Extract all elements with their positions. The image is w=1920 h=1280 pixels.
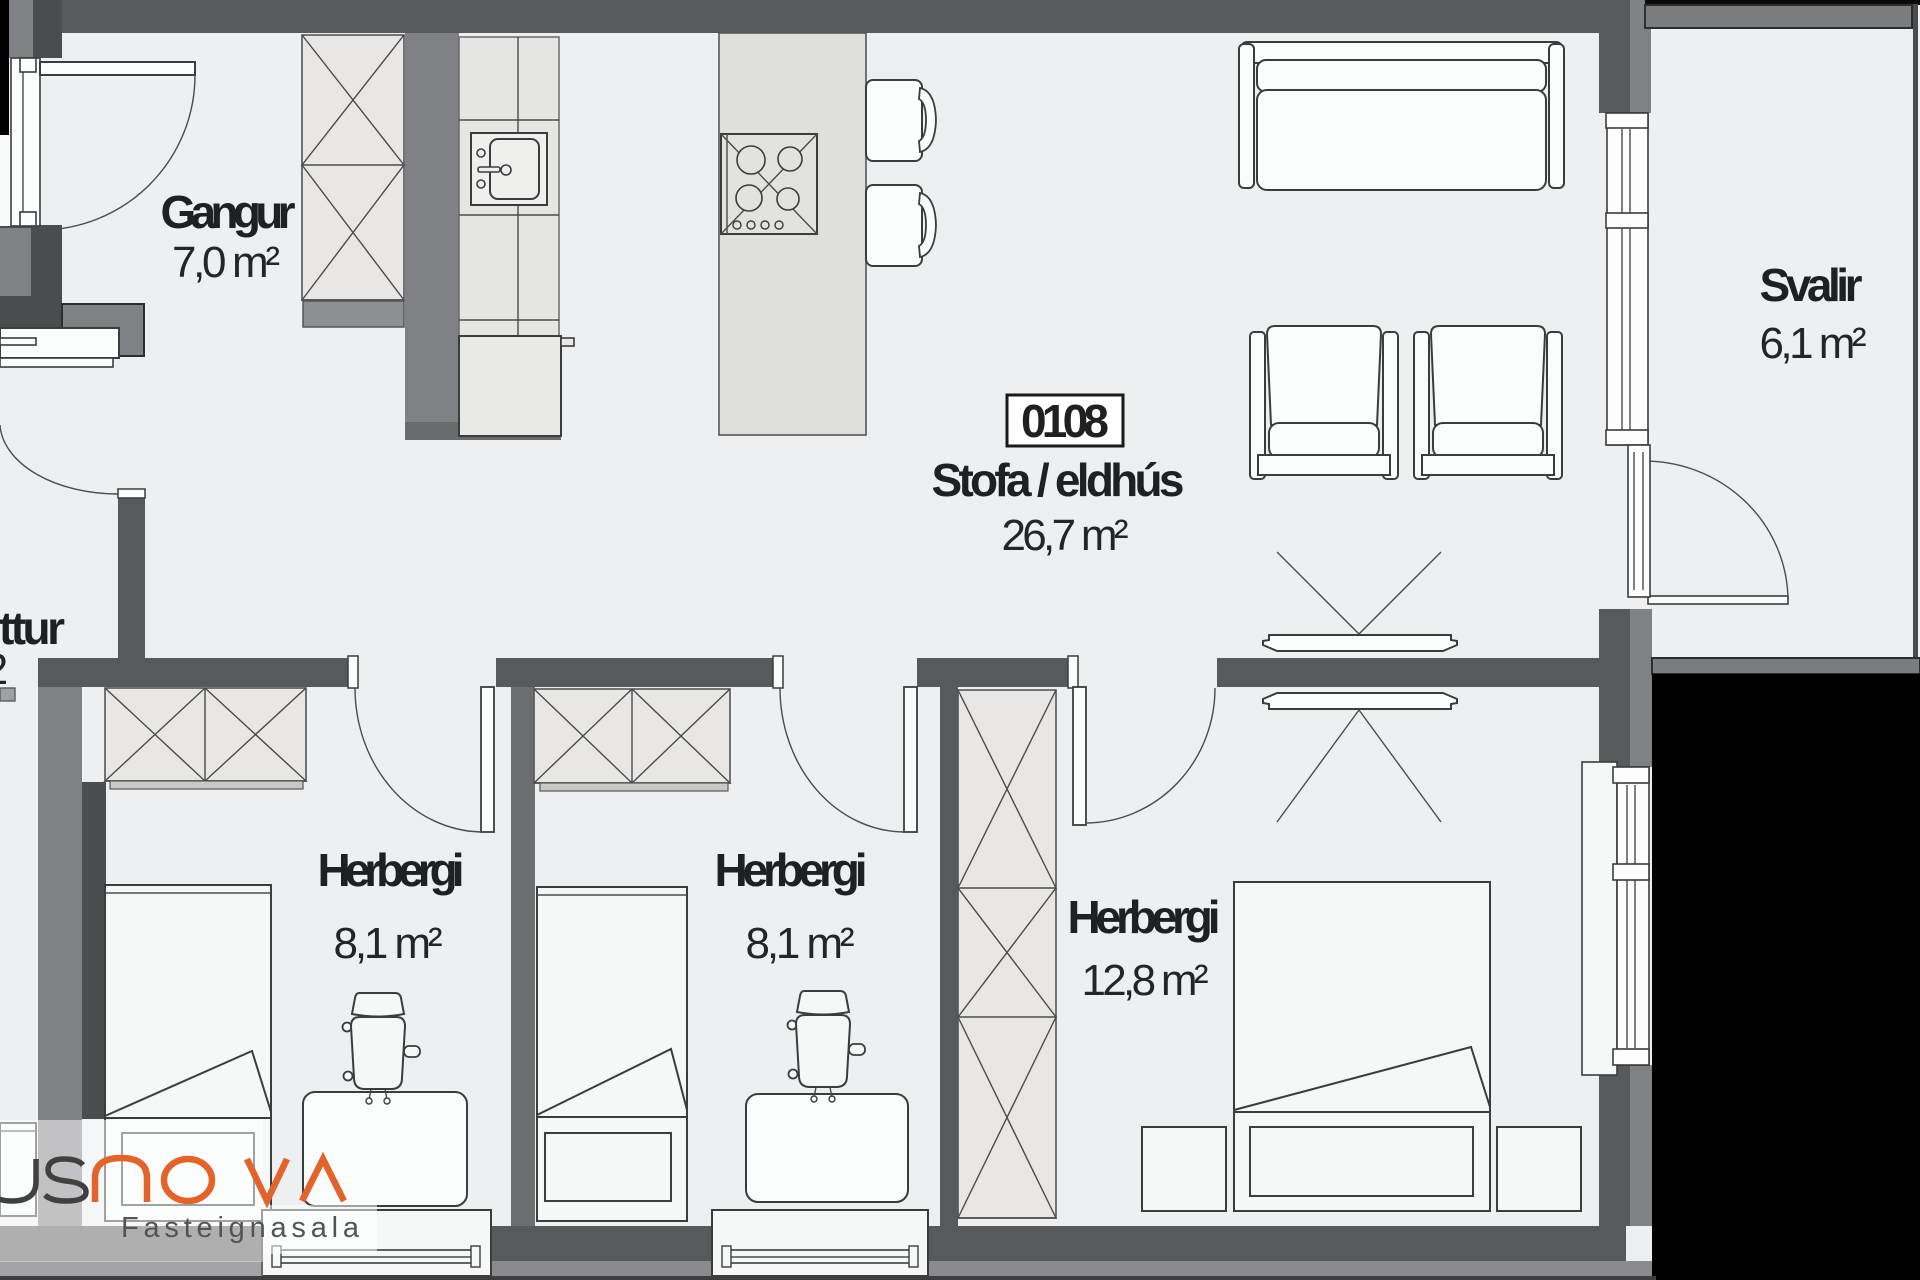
svg-text:Stofa / eldhús: Stofa / eldhús <box>932 454 1185 506</box>
svg-text:6,1 m²: 6,1 m² <box>1760 319 1867 368</box>
svg-text:Herbergi: Herbergi <box>715 844 868 896</box>
svg-text:0108: 0108 <box>1021 395 1109 447</box>
svg-text:ttur: ttur <box>0 602 65 654</box>
svg-text:7,0 m²: 7,0 m² <box>172 238 280 287</box>
svg-text:Herbergi: Herbergi <box>1068 891 1221 943</box>
svg-text:26,7 m²: 26,7 m² <box>1002 511 1129 560</box>
svg-text:2: 2 <box>0 645 8 694</box>
svg-text:Herbergi: Herbergi <box>318 844 465 896</box>
svg-text:Svalir: Svalir <box>1760 259 1863 311</box>
svg-text:8,1 m²: 8,1 m² <box>746 919 855 968</box>
svg-text:Fasteignasala: Fasteignasala <box>121 1212 360 1244</box>
svg-text:Gangur: Gangur <box>161 186 296 238</box>
svg-text:12,8 m²: 12,8 m² <box>1082 956 1209 1005</box>
svg-text:8,1 m²: 8,1 m² <box>334 919 443 968</box>
